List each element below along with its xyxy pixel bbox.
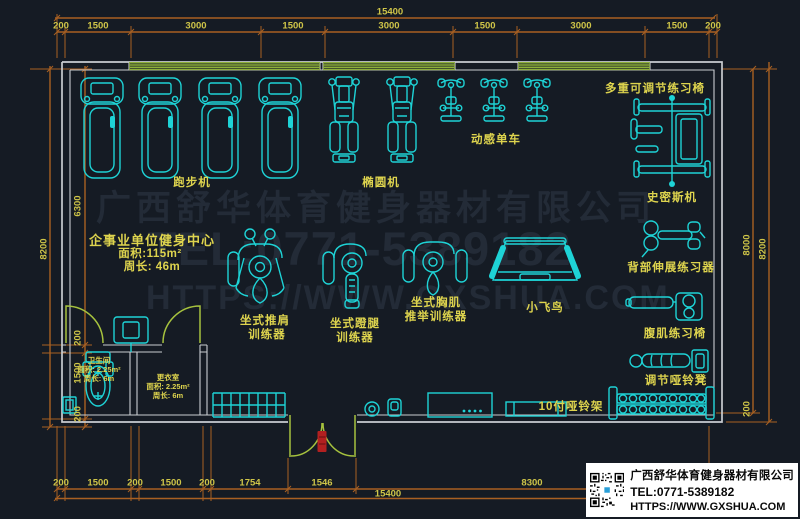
dim-right-inner: 8000	[742, 234, 753, 255]
bathroom-perimeter: 周长: 6m	[84, 373, 114, 384]
dim-label: 1500	[666, 21, 687, 32]
reception-desk-symbol	[428, 393, 492, 417]
spin-bikes-group	[438, 79, 550, 121]
dim-label: 1500	[73, 362, 84, 383]
title-block-tel: TEL:0771-5389182	[630, 485, 794, 499]
label-spin-bike: 动感单车	[471, 131, 521, 147]
window-bands	[129, 63, 650, 70]
dim-label: 1500	[160, 478, 181, 489]
title-block: 广西舒华体育健身器材有限公司 TEL:0771-5389182 HTTPS://…	[586, 463, 798, 517]
label-ab-chair: 腹肌练习椅	[644, 325, 707, 341]
dim-label: 1546	[311, 478, 332, 489]
back-extension-symbol	[642, 221, 705, 257]
label-treadmill: 跑步机	[173, 174, 211, 190]
dim-label: 1500	[87, 478, 108, 489]
treadmills-group	[81, 78, 301, 178]
dim-top-total: 15400	[377, 7, 403, 18]
ellipticals-group	[329, 77, 417, 162]
label-dumbbell-rack: 10付哑铃架	[539, 398, 604, 414]
label-fly-bird: 小飞鸟	[526, 299, 564, 315]
dim-label: 200	[199, 478, 215, 489]
dim-label: 3000	[378, 21, 399, 32]
dim-label: 3000	[185, 21, 206, 32]
label-dumbbell-bench: 调节哑铃凳	[645, 372, 708, 388]
dim-label: 200	[705, 21, 721, 32]
dim-label: 200	[127, 478, 143, 489]
dumbbell-bench-symbol	[630, 350, 708, 372]
changing-room-perimeter: 周长: 6m	[153, 390, 183, 401]
label-elliptical: 椭圆机	[362, 174, 400, 190]
dim-right-outer: 8200	[758, 238, 769, 259]
label-shoulder-press-2: 训练器	[248, 326, 286, 342]
ab-chair-symbol	[626, 293, 702, 320]
label-multi-adjustable-chair: 多重可调节练习椅	[605, 80, 705, 96]
chest-press-symbol	[403, 242, 467, 295]
dim-label: 200	[73, 330, 84, 346]
dim-label: 1500	[87, 21, 108, 32]
sink-symbol	[114, 317, 148, 352]
title-block-website: HTTPS://WWW.GXSHUA.COM	[630, 501, 794, 513]
door-handle	[318, 431, 327, 452]
dim-label: 200	[53, 478, 69, 489]
dim-label: 1754	[239, 478, 260, 489]
dim-label: 1500	[282, 21, 303, 32]
dim-bottom-total: 15400	[375, 489, 401, 500]
smith-machine-symbol	[631, 95, 710, 187]
label-chest-press-2: 推举训练器	[405, 308, 468, 324]
dim-label: 1500	[474, 21, 495, 32]
dim-label: 6300	[73, 195, 84, 216]
info-perimeter: 周长: 46m	[124, 258, 181, 274]
dim-label: 8300	[521, 478, 542, 489]
label-back-extension: 背部伸展练习器	[627, 259, 715, 275]
fly-bird-symbol	[492, 238, 578, 280]
shoulder-press-symbol	[228, 229, 284, 303]
dim-left-total: 8200	[39, 238, 50, 259]
cad-floorplan-canvas: 广西舒华体育健身器材有限公司 TEL:0771-5389182 HTTPS://…	[0, 0, 800, 519]
title-block-company: 广西舒华体育健身器材有限公司	[630, 467, 794, 483]
leg-press-symbol	[323, 244, 366, 308]
label-smith-machine: 史密斯机	[647, 189, 697, 205]
dim-label: 3000	[570, 21, 591, 32]
water-cooler-and-bin	[365, 399, 401, 416]
dim-label: 200	[73, 406, 84, 422]
dim-label: 200	[53, 21, 69, 32]
locker-grid	[213, 393, 285, 417]
dim-right-bottom: 200	[742, 401, 753, 417]
label-leg-press-2: 训练器	[336, 329, 374, 345]
qr-code	[590, 467, 624, 513]
dumbbell-rack-symbol	[609, 387, 714, 419]
